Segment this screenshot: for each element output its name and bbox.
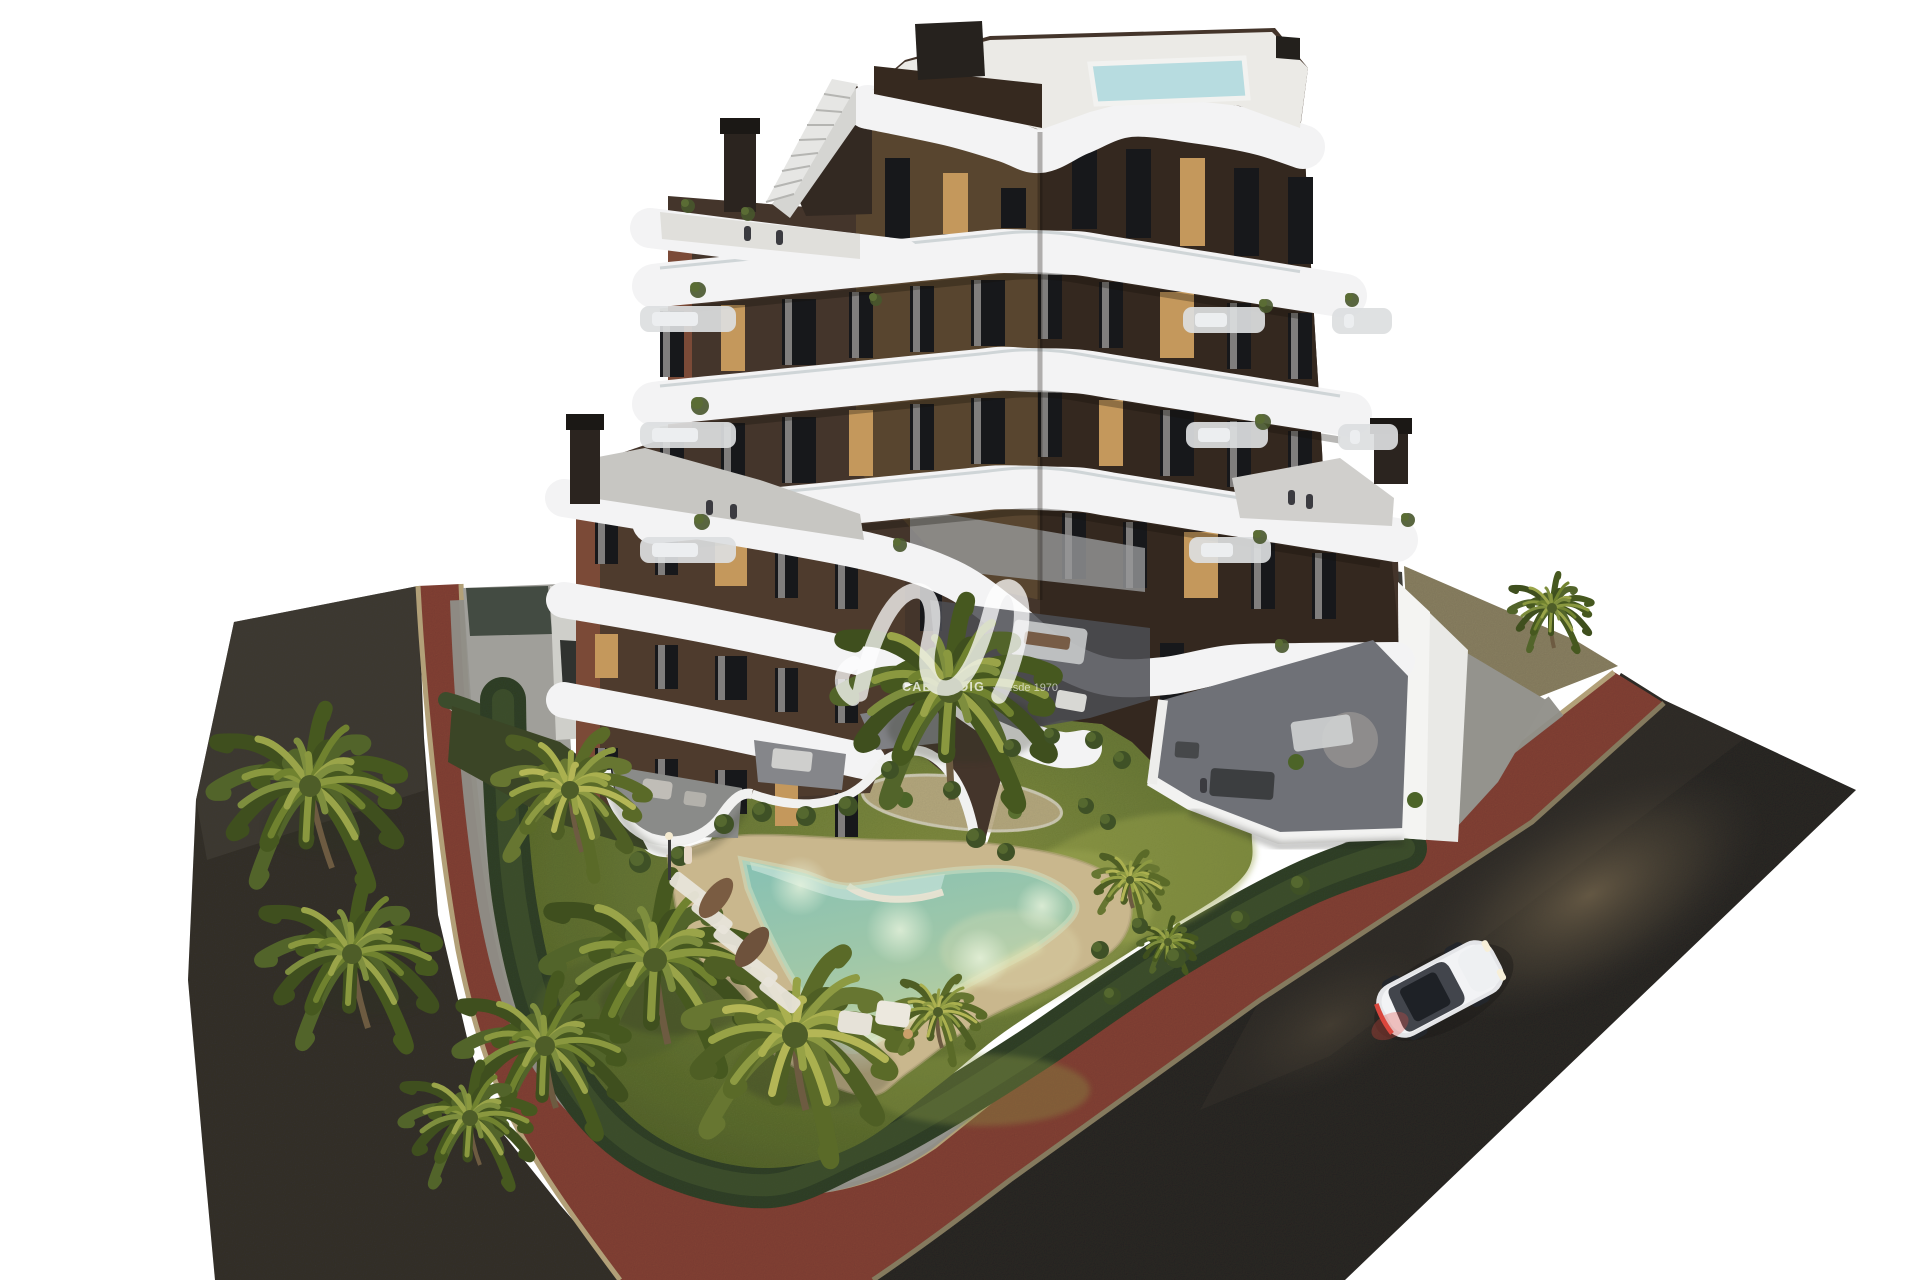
svg-text:· Desde 1970: · Desde 1970 — [992, 682, 1058, 694]
svg-text:CABO ROIG: CABO ROIG — [902, 680, 985, 694]
